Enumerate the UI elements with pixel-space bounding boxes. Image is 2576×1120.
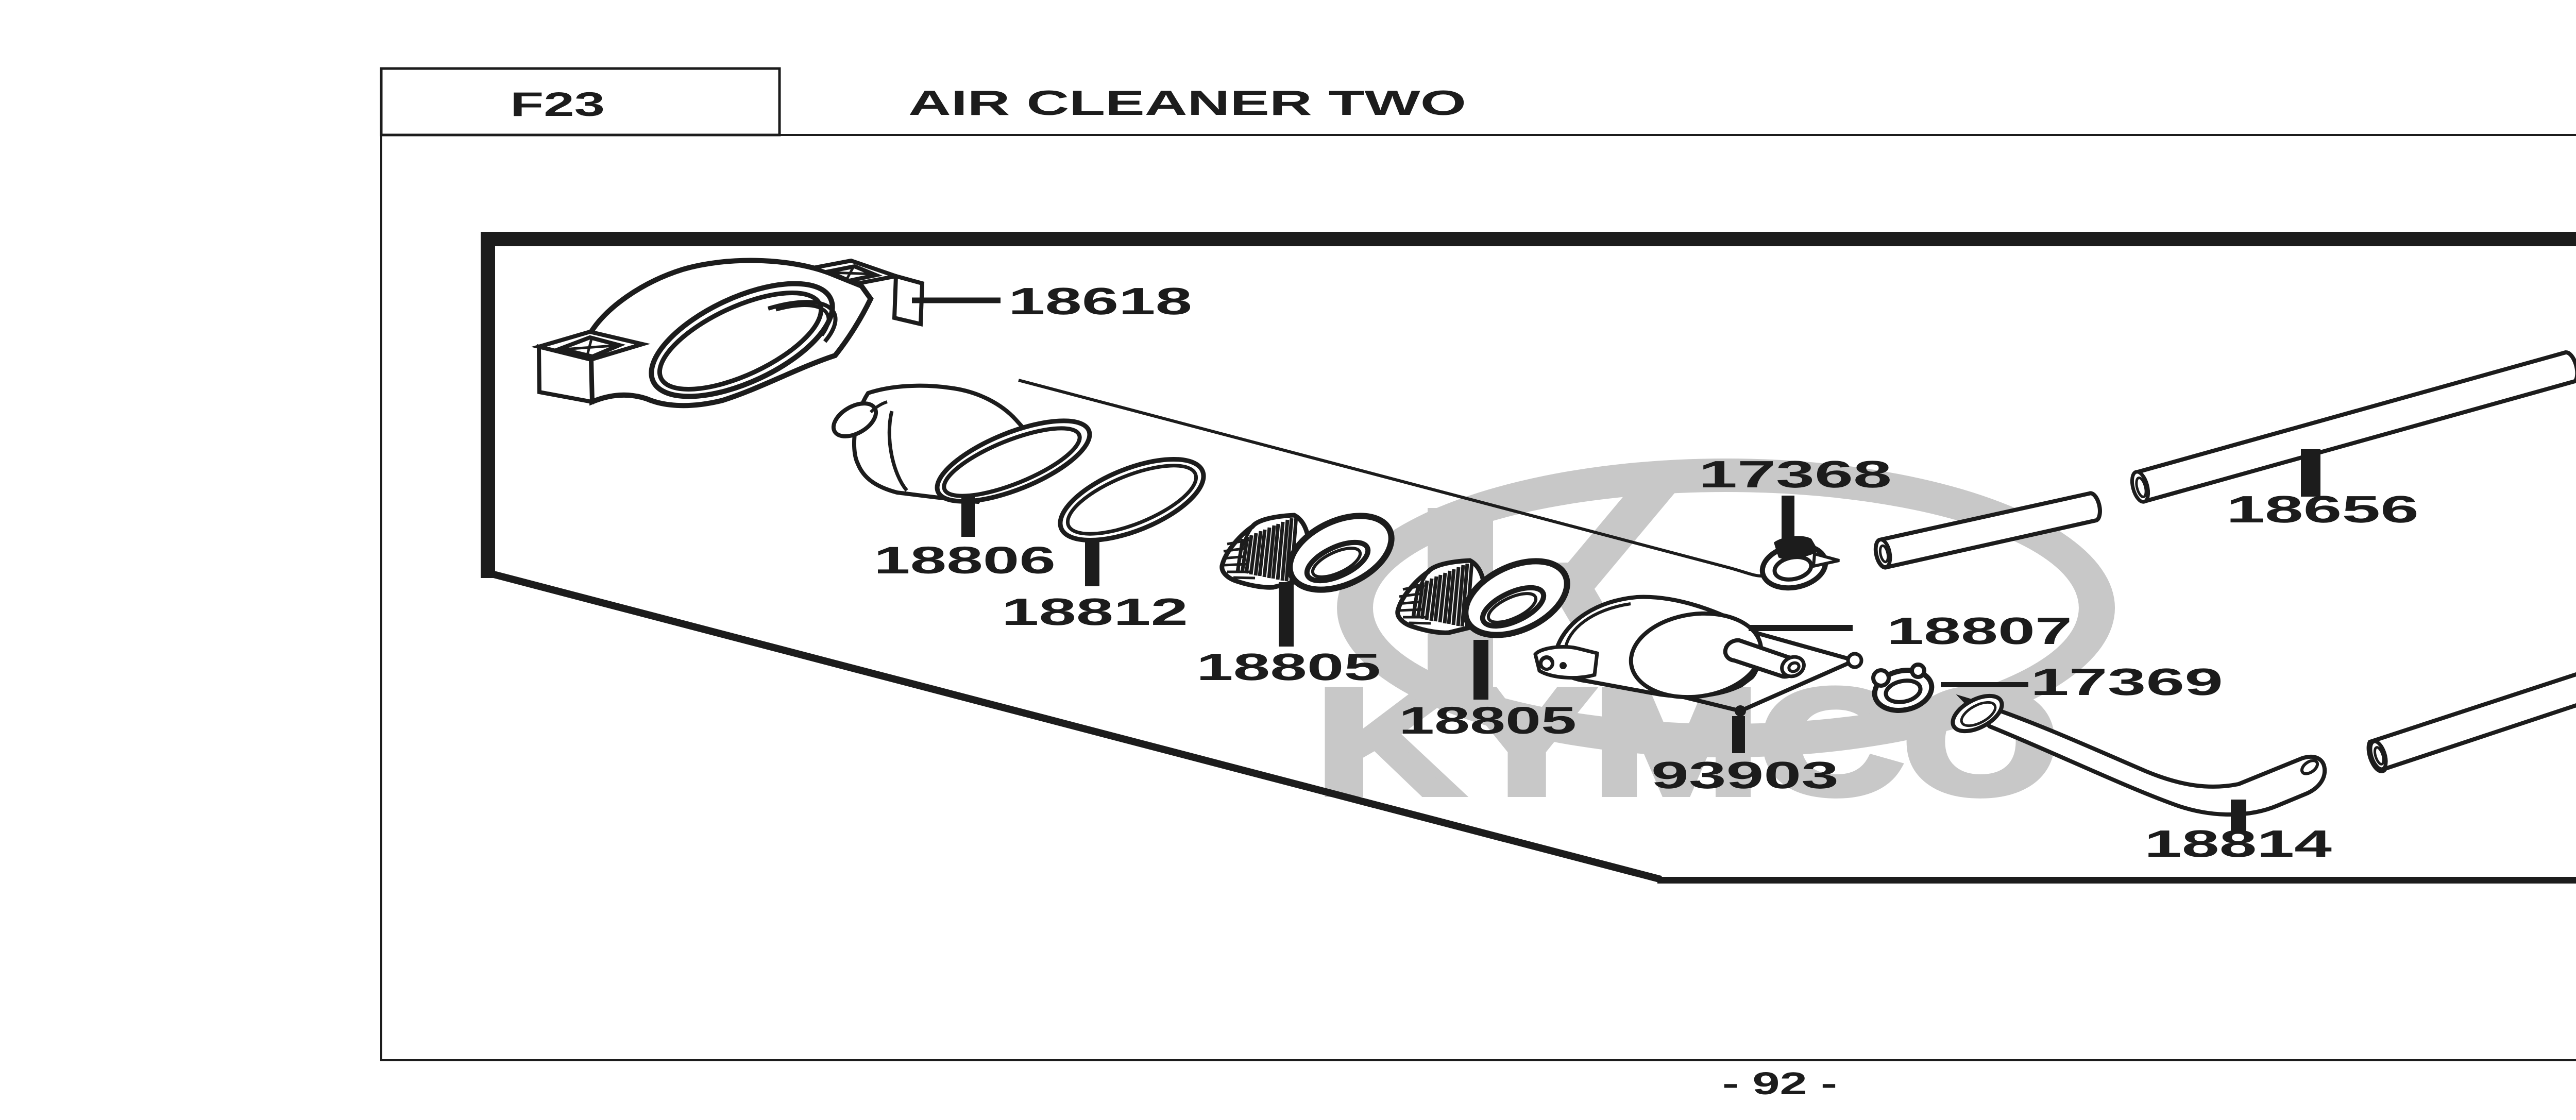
svg-text:18656: 18656 [2226, 488, 2419, 531]
svg-text:18805: 18805 [1399, 699, 1577, 742]
svg-text:18805: 18805 [1196, 646, 1381, 688]
svg-text:18814: 18814 [2144, 822, 2332, 865]
svg-text:18806: 18806 [874, 539, 1056, 582]
svg-text:- 92 -: - 92 - [1722, 1066, 1837, 1101]
svg-text:17369: 17369 [2030, 660, 2223, 703]
svg-text:17368: 17368 [1699, 453, 1892, 496]
svg-text:F23: F23 [510, 85, 605, 123]
svg-text:18812: 18812 [1002, 590, 1188, 633]
svg-text:AIR CLEANER TWO: AIR CLEANER TWO [908, 83, 1466, 123]
svg-text:93903: 93903 [1651, 754, 1839, 796]
svg-text:18618: 18618 [1008, 280, 1192, 323]
svg-text:18807: 18807 [1887, 609, 2072, 652]
